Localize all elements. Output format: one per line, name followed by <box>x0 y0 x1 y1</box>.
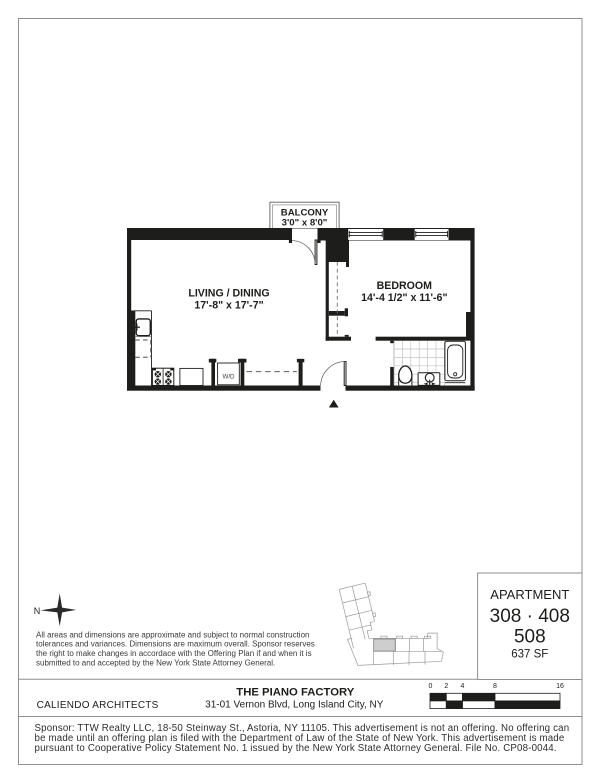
svg-text:17'-8" x 17'-7": 17'-8" x 17'-7" <box>194 299 263 311</box>
svg-text:31-01 Vernon Blvd, Long Island: 31-01 Vernon Blvd, Long Island City, NY <box>205 699 384 710</box>
svg-text:16: 16 <box>556 683 564 690</box>
svg-text:N: N <box>34 606 41 616</box>
svg-text:2: 2 <box>444 683 448 690</box>
svg-text:8: 8 <box>493 683 497 690</box>
svg-text:14'-4 1/2" x 11'-6": 14'-4 1/2" x 11'-6" <box>361 292 447 304</box>
svg-text:4: 4 <box>461 683 465 690</box>
svg-text:tolerances and variances. Dime: tolerances and variances. Dimensions are… <box>36 640 315 649</box>
svg-text:LIVING / DINING: LIVING / DINING <box>188 287 269 299</box>
svg-text:All areas and dimensions are a: All areas and dimensions are approximate… <box>36 630 309 639</box>
svg-text:the right to make changes in a: the right to make changes in accordace w… <box>36 649 312 658</box>
svg-text:637 SF: 637 SF <box>511 649 548 661</box>
svg-text:W/D: W/D <box>222 373 235 380</box>
svg-text:508: 508 <box>514 626 546 647</box>
svg-text:submitted to and accepted by t: submitted to and accepted by the New Yor… <box>36 658 275 667</box>
svg-text:APARTMENT: APARTMENT <box>490 587 569 602</box>
svg-text:308 · 408: 308 · 408 <box>490 606 570 627</box>
svg-text:CALIENDO ARCHITECTS: CALIENDO ARCHITECTS <box>37 700 159 711</box>
svg-text:0: 0 <box>429 683 433 690</box>
svg-text:pursuant to Cooperative Policy: pursuant to Cooperative Policy Statement… <box>35 743 557 754</box>
svg-text:THE PIANO FACTORY: THE PIANO FACTORY <box>236 686 354 698</box>
svg-text:BEDROOM: BEDROOM <box>377 280 432 292</box>
svg-text:3'0" x 8'0": 3'0" x 8'0" <box>282 218 328 229</box>
